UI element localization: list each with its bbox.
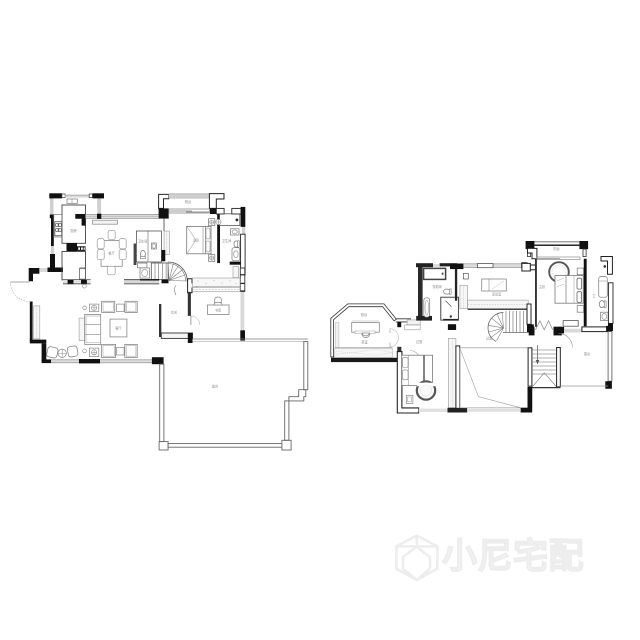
svg-text:衣帽间: 衣帽间 <box>432 284 442 289</box>
svg-text:过道: 过道 <box>486 336 493 341</box>
svg-text:露台: 露台 <box>212 384 218 389</box>
svg-text:卫生间: 卫生间 <box>222 238 232 243</box>
svg-text:活动室: 活动室 <box>492 292 502 297</box>
svg-text:厨房: 厨房 <box>70 228 76 233</box>
svg-text:阳台: 阳台 <box>185 199 191 204</box>
svg-text:餐厅: 餐厅 <box>108 251 115 256</box>
svg-text:客厅: 客厅 <box>115 326 122 331</box>
svg-text:阳台: 阳台 <box>361 312 367 317</box>
svg-text:小尼宅配: 小尼宅配 <box>442 536 584 576</box>
svg-text:卫生间: 卫生间 <box>138 238 148 243</box>
svg-text:主卧: 主卧 <box>193 238 200 243</box>
svg-text:阳台: 阳台 <box>553 246 559 251</box>
svg-text:玄关: 玄关 <box>171 310 178 315</box>
svg-text:露台: 露台 <box>584 351 590 356</box>
svg-text:过道: 过道 <box>416 339 423 344</box>
svg-text:茶室: 茶室 <box>361 340 367 345</box>
svg-text:书房: 书房 <box>215 308 221 313</box>
svg-text:主卧: 主卧 <box>539 284 546 289</box>
